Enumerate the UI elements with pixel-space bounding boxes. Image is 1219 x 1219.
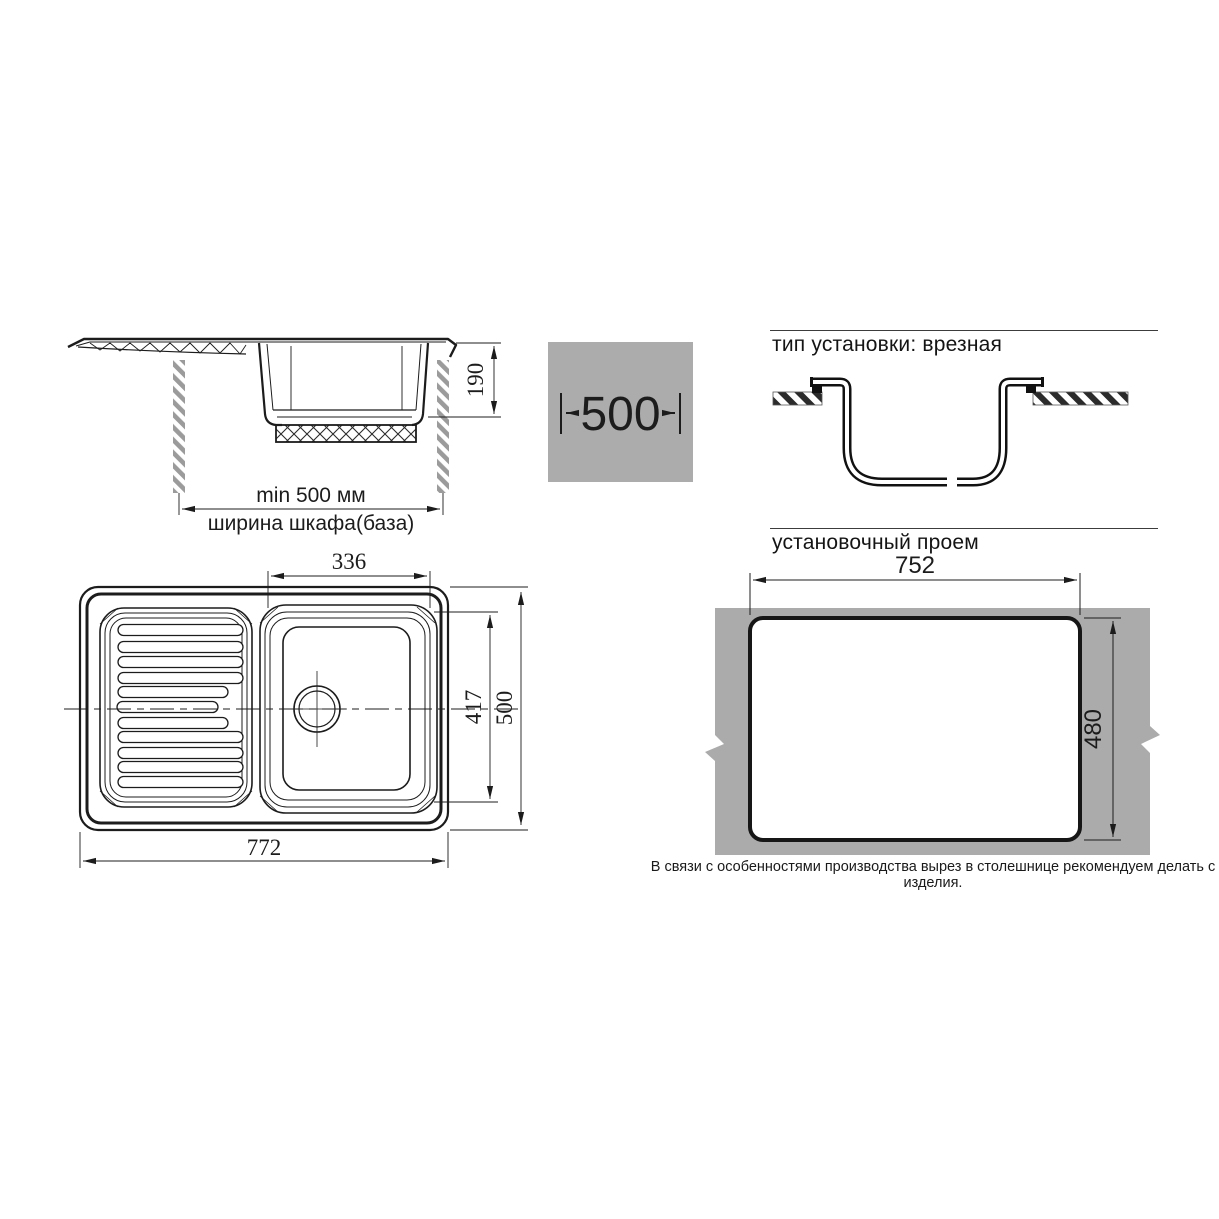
cutout-opening bbox=[750, 618, 1080, 840]
opening-width: 752 bbox=[895, 555, 935, 579]
opening-height: 480 bbox=[1080, 709, 1107, 749]
rim-profile-right bbox=[957, 377, 1043, 482]
cabinet-min-width-label: min 500 мм bbox=[256, 484, 365, 507]
cabinet-width-badge: 500 bbox=[548, 342, 693, 482]
installation-opening-drawing: 752 480 bbox=[685, 555, 1185, 865]
install-type-section: тип установки: врезная устан bbox=[770, 322, 1160, 584]
dim-bowl-width: 336 bbox=[332, 549, 367, 574]
dim-overall-width: 772 bbox=[247, 835, 282, 860]
rule-bottom bbox=[770, 528, 1158, 529]
cabinet-width-label: ширина шкафа(база) bbox=[208, 512, 415, 535]
dim-bowl-depth: 417 bbox=[461, 690, 486, 725]
install-type-heading: тип установки: врезная bbox=[772, 333, 1002, 357]
rim-profile-left bbox=[812, 377, 948, 482]
side-section-view: 190 min 500 мм ширина шкафа(база) bbox=[60, 330, 520, 545]
cabinet-width-badge-graphic: 500 bbox=[548, 342, 693, 482]
rule-top bbox=[770, 330, 1158, 331]
dim-depth: 190 bbox=[463, 363, 488, 398]
install-type-drawing bbox=[770, 368, 1160, 520]
opening-heading: установочный проем bbox=[772, 531, 979, 555]
badge-value: 500 bbox=[580, 388, 660, 441]
drainboard-ribs bbox=[117, 625, 243, 788]
dim-overall-depth: 500 bbox=[492, 691, 517, 726]
sink-spec-sheet: 190 min 500 мм ширина шкафа(база) 500 ти… bbox=[0, 0, 1219, 1219]
sink-profile bbox=[68, 339, 456, 425]
sink-top-view: 336 417 500 772 bbox=[60, 545, 535, 880]
bowl-bottom-hatch bbox=[276, 425, 416, 442]
production-note: В связи с особенностями производства выр… bbox=[650, 859, 1216, 891]
countertop-hatch bbox=[773, 392, 1128, 405]
